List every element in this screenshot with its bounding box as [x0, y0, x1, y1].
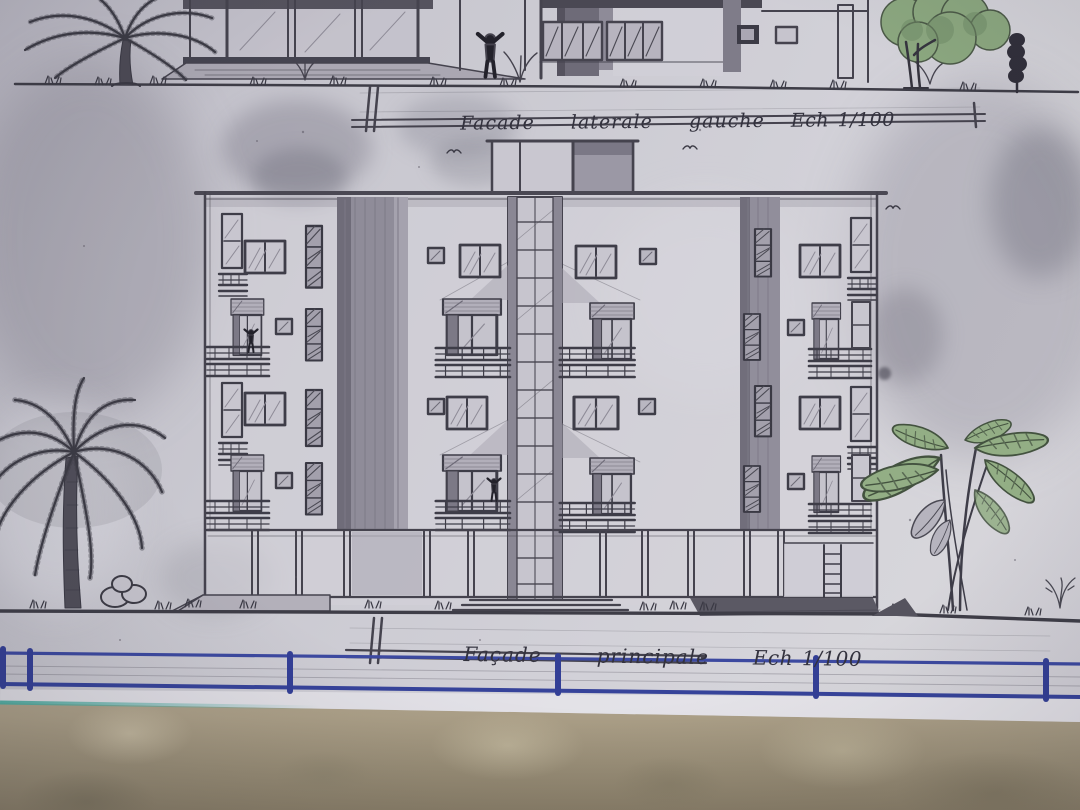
caption-title: Facade laterale gauche — [460, 110, 765, 135]
small-conifer — [1007, 33, 1027, 92]
caption-scale: Ech 1/100 — [753, 646, 862, 671]
small-shrub — [1046, 578, 1075, 608]
caption-scale: Ech 1/100 — [791, 109, 895, 132]
caption-title: Façade principale — [463, 642, 709, 669]
rocks — [101, 576, 146, 607]
left-palm-tree — [0, 378, 165, 608]
photo-of-architectural-drawing: Facade laterale gaucheEch 1/100 Façade p… — [0, 0, 1080, 810]
caption-facade-principale: Façade principaleEch 1/100 — [390, 617, 863, 695]
right-banana-plant — [858, 415, 1075, 616]
main-facade-drawing — [172, 141, 900, 616]
top-right-tree — [881, 0, 1027, 92]
caption-facade-laterale-gauche: Facade laterale gaucheEch 1/100 — [388, 87, 895, 157]
